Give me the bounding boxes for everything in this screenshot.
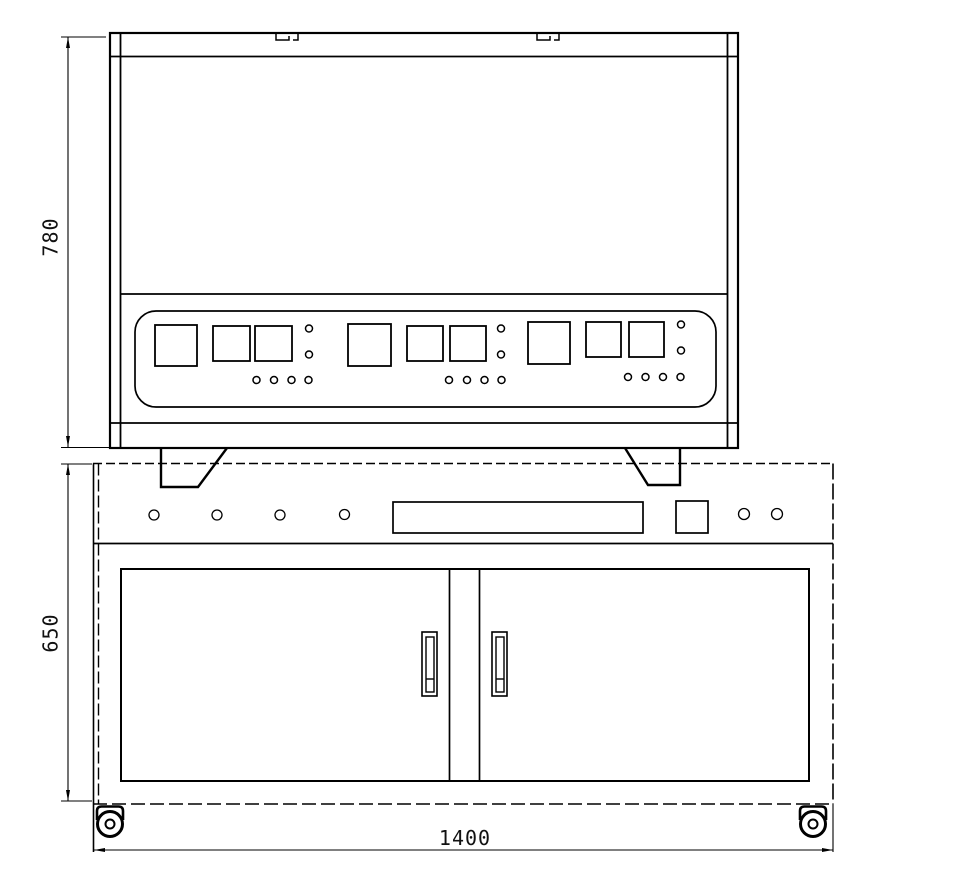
switch-square — [676, 501, 708, 533]
machine-front-view — [110, 33, 738, 487]
knob — [340, 510, 350, 520]
indicator-dot — [660, 374, 667, 381]
machine-foot-left — [161, 448, 227, 487]
button-square — [586, 322, 621, 357]
dimension-cabinet-width: 1400 — [94, 804, 833, 852]
caster-right — [800, 807, 826, 837]
button-square — [255, 326, 292, 361]
knob — [212, 510, 222, 520]
indicator-dot — [271, 377, 278, 384]
lid-tab-left — [276, 34, 298, 40]
dimension-machine-height: 780 — [39, 37, 111, 448]
control-panel — [135, 311, 716, 407]
cabinet-front-view — [93, 464, 833, 853]
button-square — [407, 326, 443, 361]
panel-group-3 — [528, 321, 685, 381]
arrowhead-up — [66, 464, 70, 475]
arrowhead-right — [822, 848, 833, 852]
indicator-dot — [498, 351, 505, 358]
dimension-label-1400: 1400 — [439, 826, 491, 850]
handle-outer — [492, 632, 507, 696]
indicator-light — [772, 509, 783, 520]
door-frame — [121, 569, 809, 781]
caster-left — [97, 807, 123, 837]
indicator-dot — [306, 325, 313, 332]
lid-tab-right — [537, 34, 559, 40]
indicator-dot — [446, 377, 453, 384]
dimension-cabinet-height: 650 — [39, 464, 93, 801]
caster-bracket — [97, 807, 123, 821]
large-button-square — [155, 325, 197, 366]
machine-foot-right — [625, 448, 680, 485]
indicator-dot — [481, 377, 488, 384]
dimension-annotations: 780 650 1400 — [39, 37, 834, 852]
knob — [275, 510, 285, 520]
drawing-svg: 780 650 1400 — [0, 0, 956, 887]
button-square — [450, 326, 486, 361]
large-button-square — [528, 322, 570, 364]
knob — [149, 510, 159, 520]
caster-wheel — [801, 812, 826, 837]
dimension-label-780: 780 — [39, 217, 63, 256]
dimension-label-650: 650 — [39, 613, 63, 652]
indicator-dot — [678, 347, 685, 354]
indicator-dot — [306, 351, 313, 358]
indicator-dot — [642, 374, 649, 381]
door-handle-left — [422, 632, 437, 696]
indicator-dot — [498, 377, 505, 384]
indicator-dot — [464, 377, 471, 384]
arrowhead-down — [66, 790, 70, 801]
caster-bracket — [800, 807, 826, 821]
large-button-square — [348, 324, 391, 366]
caster-wheel — [98, 812, 123, 837]
arrowhead-down — [66, 436, 70, 447]
arrowhead-left — [94, 848, 105, 852]
indicator-dot — [288, 377, 295, 384]
panel-group-1 — [155, 325, 313, 384]
handle-inner — [426, 637, 434, 692]
indicator-dot — [253, 377, 260, 384]
indicator-dot — [625, 374, 632, 381]
arrowhead-up — [66, 37, 70, 48]
button-square — [629, 322, 664, 357]
handle-outer — [422, 632, 437, 696]
indicator-dot — [678, 321, 685, 328]
indicator-dot — [677, 374, 684, 381]
indicator-light — [739, 509, 750, 520]
machine-outline — [110, 33, 738, 448]
handle-inner — [496, 637, 504, 692]
caster-axle — [106, 820, 115, 829]
panel-group-2 — [348, 324, 505, 384]
cabinet-doors — [121, 569, 809, 781]
display-slot — [393, 502, 643, 533]
indicator-dot — [305, 377, 312, 384]
door-handle-right — [492, 632, 507, 696]
cabinet-control-band — [149, 501, 783, 533]
technical-drawing-page: 780 650 1400 — [0, 0, 956, 887]
button-square — [213, 326, 250, 361]
indicator-dot — [498, 325, 505, 332]
caster-axle — [809, 820, 818, 829]
